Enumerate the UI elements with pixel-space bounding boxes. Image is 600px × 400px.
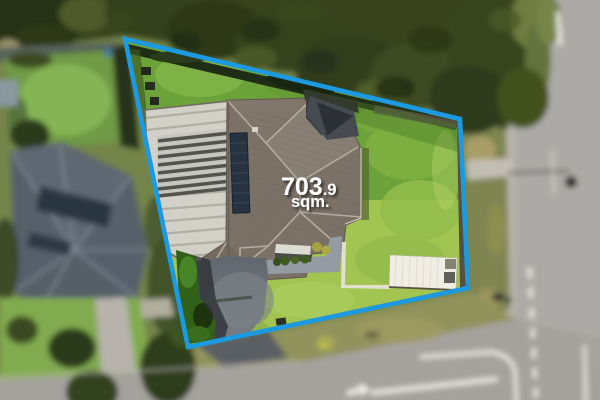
svg-text:sqm.: sqm.	[291, 193, 330, 211]
